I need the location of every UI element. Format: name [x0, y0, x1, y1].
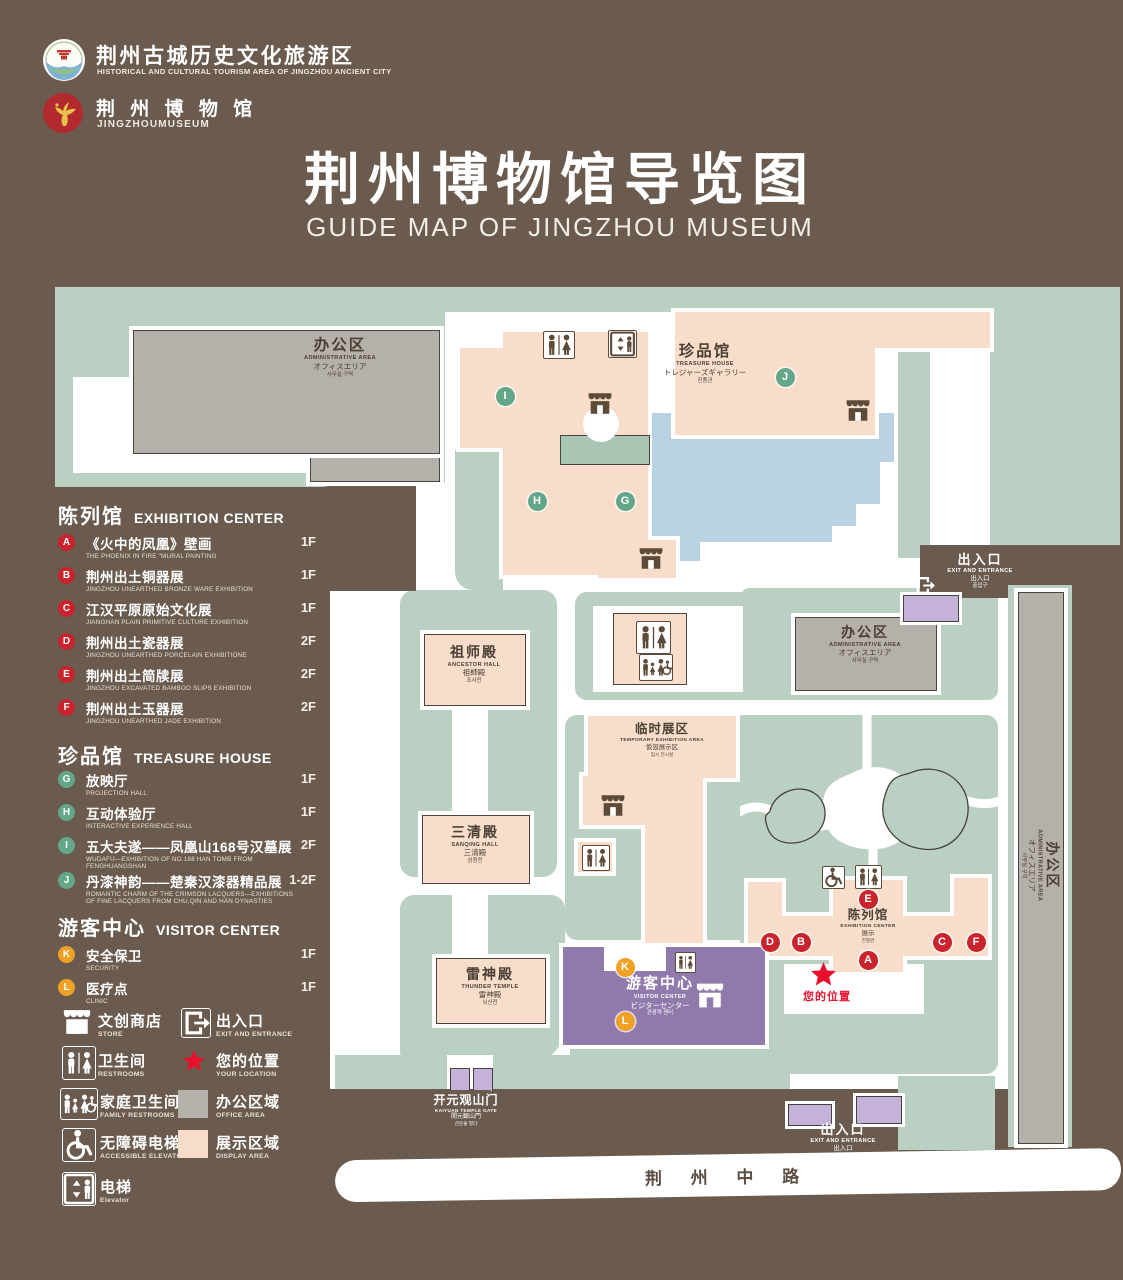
office-area-swatch: [178, 1090, 208, 1118]
legend-item-I: I 五大夫遂——凤凰山168号汉墓展WUDAFU—EXHIBITION OF N…: [58, 836, 316, 870]
your-location-label: 您的位置: [790, 988, 864, 1004]
store-icon: [600, 794, 626, 817]
facility-display-area: 展示区域DISPLAY AREA: [216, 1132, 280, 1160]
road-label: 荆 州 中 路: [645, 1161, 812, 1189]
facility-office-area: 办公区域OFFICE AREA: [216, 1091, 280, 1119]
map-marker-I: I: [496, 387, 515, 406]
facility-restrooms: 卫生间RESTROOMS: [98, 1050, 146, 1078]
map-marker-K: K: [616, 958, 635, 977]
legend-item-K: K 安全保卫SECURITY 1F: [58, 945, 316, 972]
legend-item-J: J 丹漆神韵——楚秦汉漆器精品展ROMANTIC CHARM OF THE CR…: [58, 871, 316, 905]
map-marker-E: E: [859, 890, 878, 909]
map-marker-C: C: [933, 933, 952, 952]
family-restroom-icon: [60, 1088, 98, 1120]
tourism-area-subtitle: HISTORICAL AND CULTURAL TOURISM AREA OF …: [97, 67, 392, 76]
map-marker-F: F: [967, 933, 986, 952]
legend-item-L: L 医疗点CLINIC 1F: [58, 978, 316, 1005]
guide-map-page: 荆州古城历史文化旅游区 HISTORICAL AND CULTURAL TOUR…: [0, 0, 1123, 1280]
map-marker-J: J: [776, 368, 795, 387]
path-connector: [452, 704, 488, 819]
restroom-icon: [675, 952, 696, 973]
tourism-area-title: 荆州古城历史文化旅游区: [96, 40, 355, 70]
store-icon: [62, 1008, 92, 1036]
tourism-area-logo: [42, 38, 86, 82]
treasure-house-label: 珍品馆 TREASURE HOUSE トレジャーズギャラリー 진품관: [630, 342, 780, 385]
legend-item-H: H 互动体验厅INTERACTIVE EXPERIENCE HALL 1F: [58, 803, 316, 830]
south-band-mid: [492, 1055, 790, 1089]
legend-item-B: B 荆州出土铜器展JINGZHOU UNEARTHED BRONZE WARE …: [58, 566, 316, 593]
facility-your-location: 您的位置YOUR LOCATION: [216, 1050, 280, 1078]
gate-pillar: [473, 1068, 493, 1093]
legend-item-E: E 荆州出土简牍展JINGZHOU EXCAVATED BAMBOO SLIPS…: [58, 665, 316, 692]
kaiyuan-gate-label: 开元观山门 KAIYUAN TEMPLE GATE 開元観山門 산문을 열다: [398, 1093, 534, 1127]
elevator-icon: [62, 1172, 96, 1206]
museum-logo-subtitle: JINGZHOUMUSEUM: [97, 119, 210, 130]
restroom-icon: [62, 1046, 96, 1080]
restroom-icon: [582, 845, 610, 871]
facility-store: 文创商店STORE: [98, 1010, 162, 1038]
south-band-east: [898, 1076, 995, 1150]
admin-strip-label: 办公区 ADMINISTRATIVE AREA オフィスエリア 사무실 구역: [1020, 800, 1061, 930]
road: 荆 州 中 路: [335, 1148, 1122, 1202]
map-marker-D: D: [761, 933, 780, 952]
map-edge-patch: [330, 483, 416, 591]
your-location-icon: [182, 1050, 206, 1073]
map-edge-east: [1072, 560, 1123, 1160]
courtyard-block: [455, 450, 503, 590]
south-band-west: [335, 1055, 447, 1089]
your-location-star: [810, 962, 837, 988]
museum-logo-title: 荆 州 博 物 馆: [96, 94, 257, 121]
store-icon: [638, 547, 664, 570]
facility-family-restrooms: 家庭卫生间FAMILY RESTROOMS: [100, 1091, 180, 1119]
facility-exit: 出入口EXIT AND ENTRANCE: [216, 1010, 292, 1038]
store-icon: [587, 392, 613, 415]
map-marker-A: A: [859, 951, 878, 970]
gate-structure: [903, 595, 959, 622]
thunder-temple-label: 雷神殿 THUNDER TEMPLE 雷神殿 뇌신전: [436, 966, 544, 1007]
exhibition-center-building: [748, 882, 782, 918]
courtyard-block: [898, 348, 930, 558]
exit-icon: [181, 1008, 211, 1038]
map-marker-G: G: [616, 492, 635, 511]
legend-item-F: F 荆州出土玉器展JINGZHOU UNEARTHED JADE EXHIBIT…: [58, 698, 316, 725]
admin-topleft-label: 办公区 ADMINISTRATIVE AREA オフィスエリア 사무실 구역: [270, 336, 410, 379]
temporary-exhibition-label: 临时展区 TEMPORARY EXHIBITION AREA 仮設展示区 임시 …: [588, 722, 736, 757]
restroom-icon: [543, 331, 575, 359]
elevator-icon: [608, 330, 637, 358]
legend-item-A: A 《火中的凤凰》壁画THE PHOENIX IN FIRE "MURAL PA…: [58, 533, 316, 560]
section-treasure-house: 珍品馆TREASURE HOUSE: [58, 740, 272, 769]
temporary-exhibition-building: [645, 778, 703, 966]
museum-logo: [42, 92, 84, 134]
gate-structure: [856, 1096, 902, 1124]
page-subtitle: GUIDE MAP OF JINGZHOU MUSEUM: [210, 212, 910, 243]
store-icon: [695, 982, 725, 1009]
map-marker-L: L: [616, 1012, 635, 1031]
exhibition-center-label: 陈列馆 EXHIBITION CENTER 展示 진열관: [818, 908, 918, 943]
restroom-icon: [855, 865, 882, 889]
visitor-center-notch: [604, 947, 666, 971]
accessible-elevator-icon: [62, 1128, 96, 1162]
legend-item-D: D 荆州出土瓷器展JINGZHOU UNEARTHED PORCELAIN EX…: [58, 632, 316, 659]
courtyard-block: [990, 287, 1120, 545]
facility-accessible-elevator: 无障碍电梯ACCESSIBLE ELEVATOR: [100, 1132, 187, 1160]
store-icon: [845, 399, 871, 422]
ancestor-hall-label: 祖师殿 ANCESTOR HALL 祖師殿 조사전: [424, 644, 524, 685]
restroom-icon: [636, 621, 671, 654]
legend-item-C: C 江汉平原原始文化展JIANGHAN PLAIN PRIMITIVE CULT…: [58, 599, 316, 626]
treasure-house-step: [598, 540, 676, 578]
sanqing-hall-label: 三清殿 SANQING HALL 三清殿 삼청전: [422, 824, 528, 865]
page-title: 荆州博物馆导览图: [210, 135, 910, 216]
gate-pillar: [450, 1068, 470, 1093]
map-marker-B: B: [792, 933, 811, 952]
treasure-house-east: [875, 312, 990, 348]
legend-item-G: G 放映厅PROJECTION HALL 1F: [58, 770, 316, 797]
accessible-elevator-icon: [822, 866, 845, 889]
display-area-swatch: [178, 1130, 208, 1158]
facility-elevator: 电梯Elevator: [100, 1176, 132, 1204]
section-exhibition-center: 陈列馆EXHIBITION CENTER: [58, 500, 284, 529]
exhibition-center-building: [954, 878, 988, 918]
path-connector: [452, 878, 488, 960]
admin-east-label: 办公区 ADMINISTRATIVE AREA オフィスエリア 사무실 구역: [795, 624, 935, 665]
section-visitor-center: 游客中心VISITOR CENTER: [58, 912, 280, 941]
exit-top-label: 出入口 EXIT AND ENTRANCE 出入口 출입구: [930, 552, 1030, 590]
family-restroom-icon: [639, 654, 673, 681]
map-marker-H: H: [528, 492, 547, 511]
